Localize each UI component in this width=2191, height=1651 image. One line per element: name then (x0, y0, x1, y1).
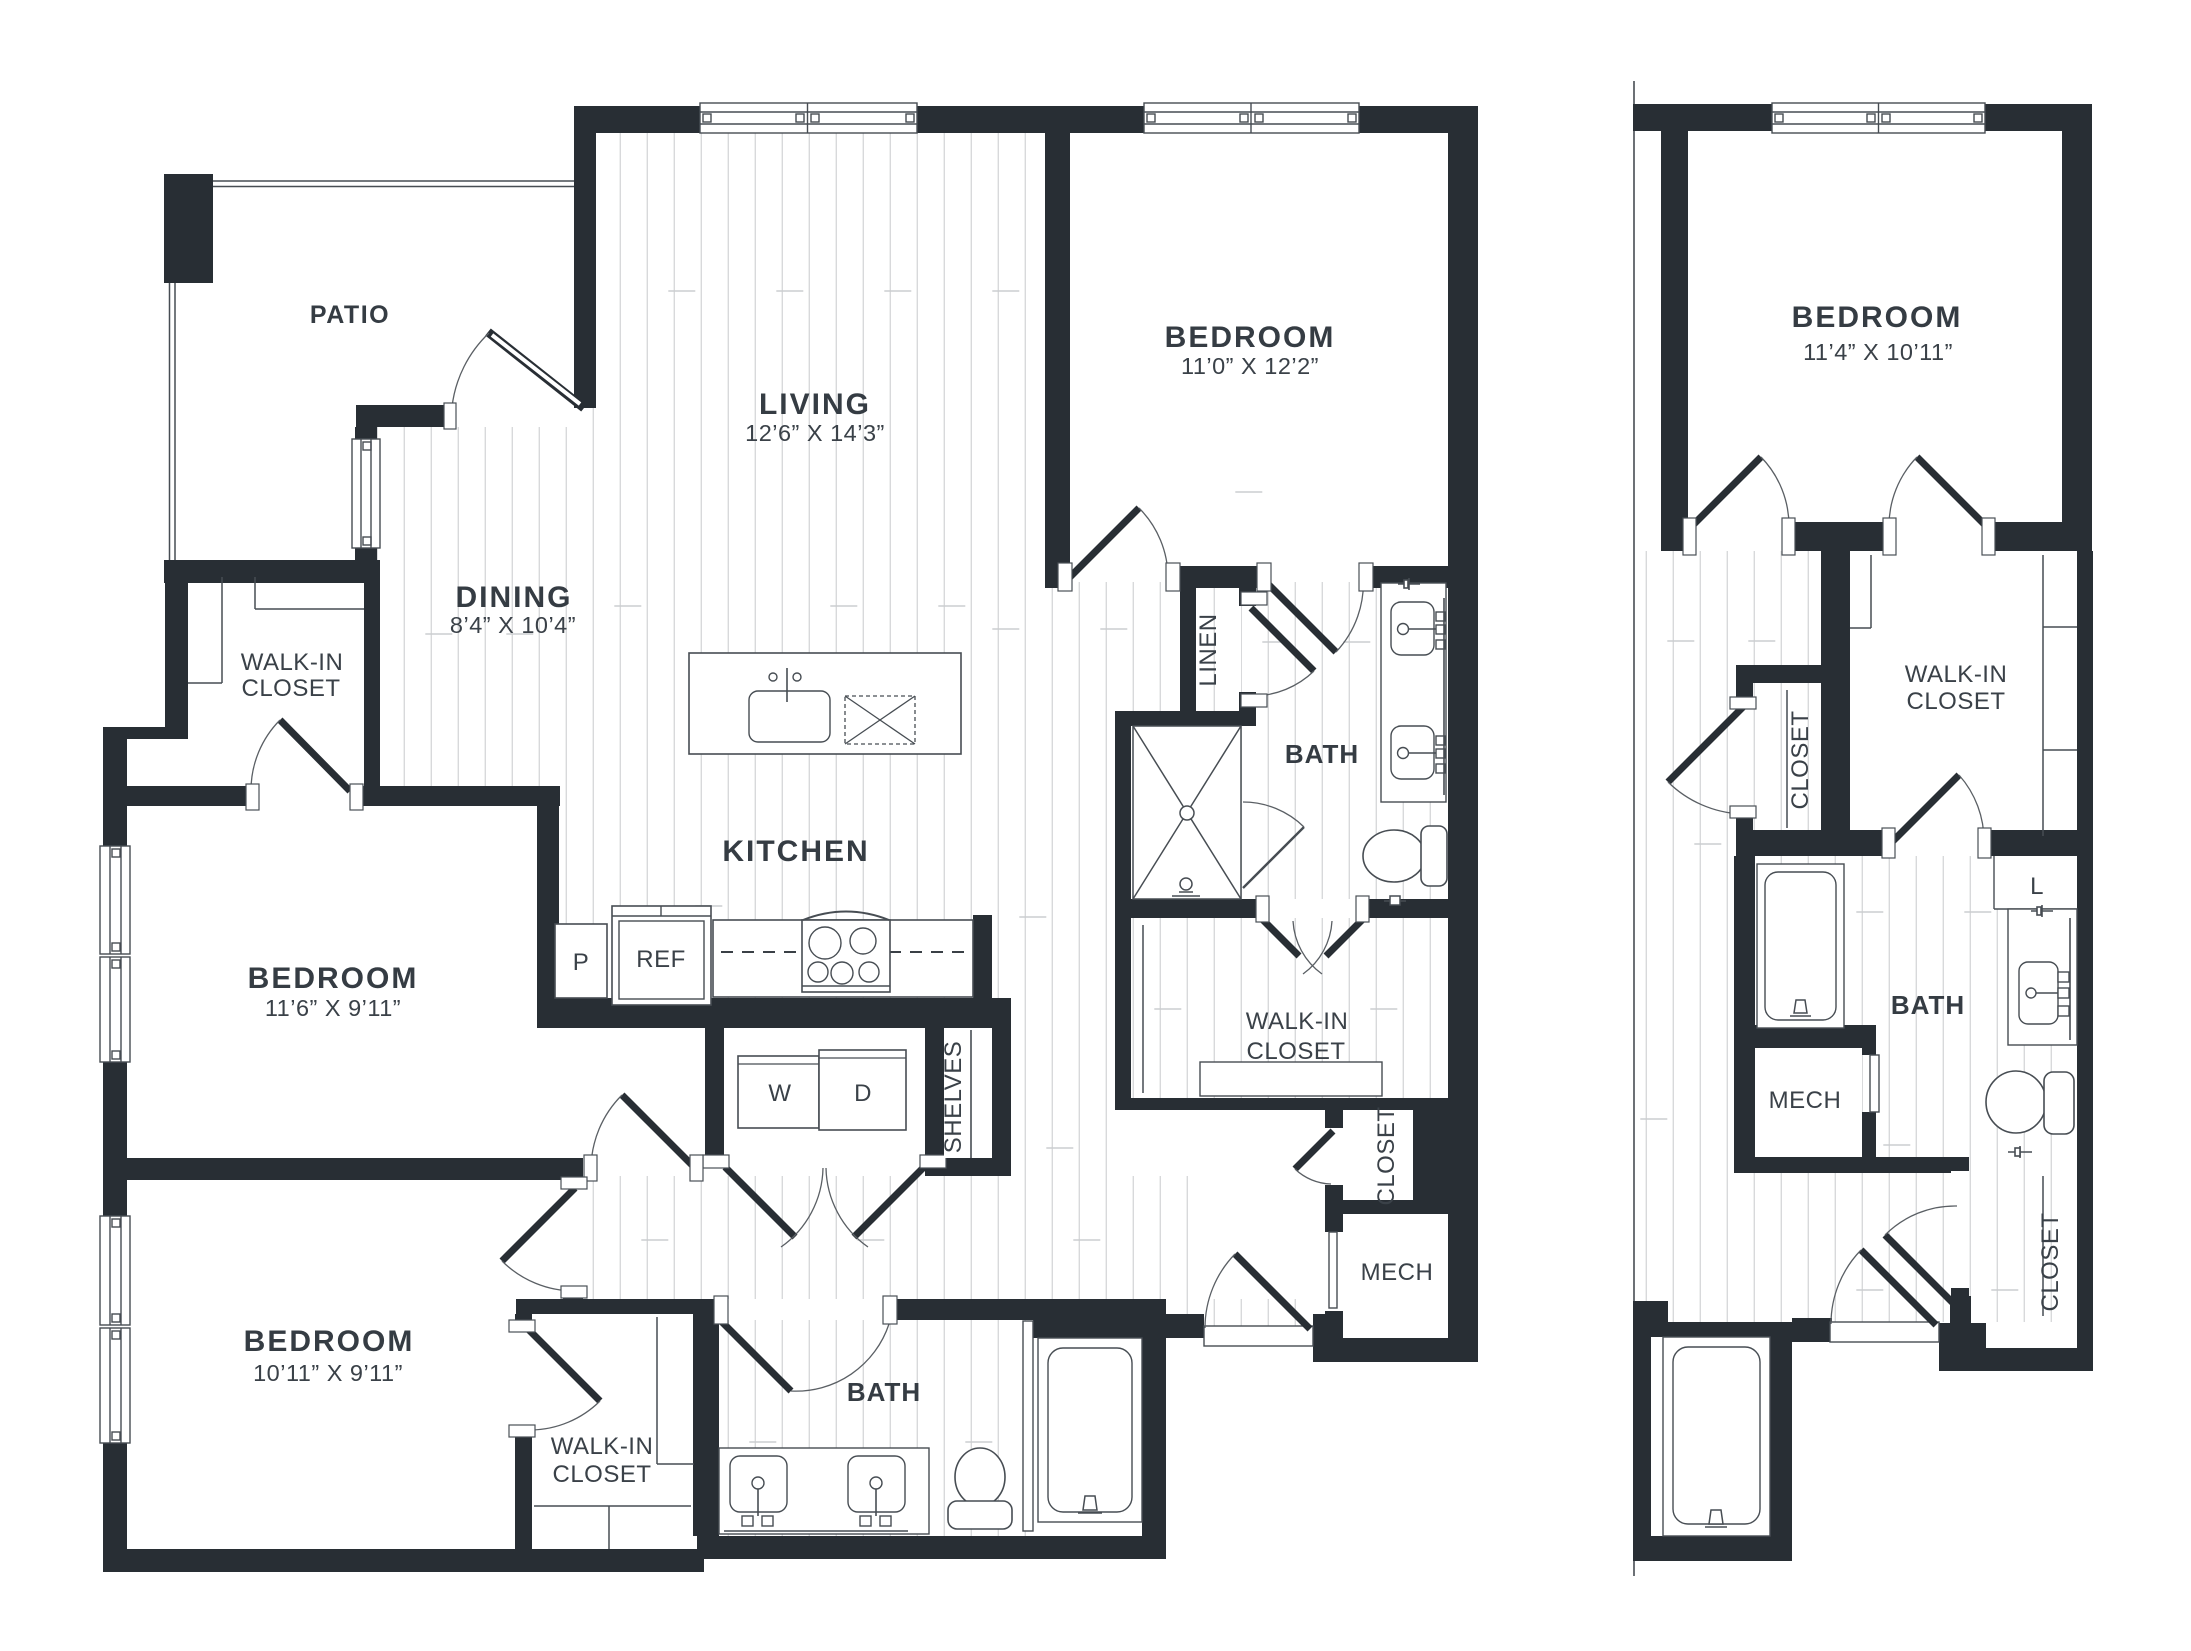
svg-text:BATH: BATH (1891, 990, 1965, 1020)
svg-text:10’11” X 9’11”: 10’11” X 9’11” (253, 1360, 403, 1386)
svg-text:L: L (2030, 873, 2044, 900)
svg-text:LINEN: LINEN (1195, 613, 1222, 686)
svg-text:SHELVES: SHELVES (940, 1041, 967, 1153)
svg-text:BEDROOM: BEDROOM (1165, 321, 1336, 354)
svg-text:11’6” X 9’11”: 11’6” X 9’11” (265, 995, 401, 1021)
svg-text:CLOSET: CLOSET (241, 675, 340, 702)
svg-text:CLOSET: CLOSET (1246, 1038, 1345, 1065)
svg-text:BEDROOM: BEDROOM (248, 962, 419, 995)
svg-text:WALK-IN: WALK-IN (1905, 661, 2008, 688)
svg-text:WALK-IN: WALK-IN (241, 649, 344, 676)
svg-text:CLOSET: CLOSET (552, 1461, 651, 1488)
svg-text:WALK-IN: WALK-IN (551, 1433, 654, 1460)
svg-text:BEDROOM: BEDROOM (1792, 301, 1963, 334)
svg-text:11’4” X 10’11”: 11’4” X 10’11” (1803, 339, 1953, 365)
svg-text:MECH: MECH (1769, 1087, 1842, 1114)
svg-text:P: P (573, 949, 590, 976)
svg-text:KITCHEN: KITCHEN (722, 835, 869, 868)
svg-text:LIVING: LIVING (759, 388, 871, 421)
svg-text:REF: REF (636, 946, 686, 973)
svg-text:PATIO: PATIO (310, 301, 390, 329)
svg-text:BATH: BATH (1285, 739, 1359, 769)
svg-text:8’4” X 10’4”: 8’4” X 10’4” (450, 612, 576, 638)
svg-text:W: W (768, 1080, 791, 1107)
svg-text:CLOSET: CLOSET (1906, 688, 2005, 715)
svg-text:D: D (854, 1080, 872, 1107)
svg-text:BATH: BATH (847, 1377, 921, 1407)
svg-text:BEDROOM: BEDROOM (244, 1325, 415, 1358)
svg-text:11’0” X 12’2”: 11’0” X 12’2” (1181, 353, 1319, 379)
svg-text:12’6” X 14’3”: 12’6” X 14’3” (745, 420, 885, 446)
svg-text:CLOSET: CLOSET (2037, 1212, 2064, 1311)
svg-text:CLOSET: CLOSET (1373, 1106, 1400, 1205)
svg-text:DINING: DINING (456, 581, 573, 614)
svg-text:CLOSET: CLOSET (1787, 710, 1814, 809)
svg-text:WALK-IN: WALK-IN (1246, 1008, 1349, 1035)
svg-text:MECH: MECH (1361, 1259, 1434, 1286)
